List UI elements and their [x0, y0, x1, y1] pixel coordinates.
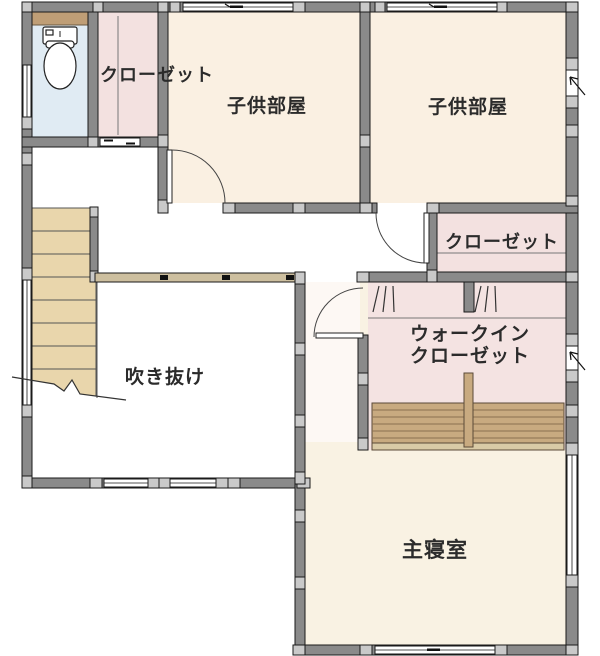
room-label-wic-line1: ウォークイン — [410, 323, 530, 345]
vent-arrow-icon — [566, 346, 585, 370]
door-kids-room-2 — [376, 213, 429, 263]
window — [567, 455, 577, 575]
wic-center-post — [464, 282, 474, 312]
hall-nook-floor — [305, 282, 360, 442]
room-label-closet-top: クローゼット — [100, 64, 214, 85]
stairs-body — [32, 208, 96, 400]
room-label-closet-right: クローゼット — [445, 231, 559, 252]
window — [23, 65, 31, 117]
room-label-kids-room-2: 子供部屋 — [428, 95, 508, 118]
vent-arrow-icon — [566, 70, 585, 96]
room-label-wic-line2: クローゼット — [410, 344, 530, 367]
room-label-master-bedroom: 主寝室 — [402, 538, 468, 562]
floor-plan: クローゼット 子供部屋 子供部屋 クローゼット ウォークイン クローゼット 吹き… — [0, 0, 600, 656]
room-label-kids-room-1: 子供部屋 — [227, 94, 307, 117]
atrium-railing — [95, 273, 297, 282]
window — [387, 3, 497, 11]
window — [104, 479, 148, 487]
toilet-shelf — [32, 12, 88, 25]
window — [23, 280, 31, 405]
window — [375, 646, 495, 654]
door-swing-arc — [376, 213, 426, 263]
sliding-door — [100, 138, 140, 146]
window — [170, 479, 216, 487]
wic-shelf-divider — [464, 373, 473, 447]
window — [183, 3, 293, 11]
room-label-atrium: 吹き抜け — [125, 365, 205, 388]
